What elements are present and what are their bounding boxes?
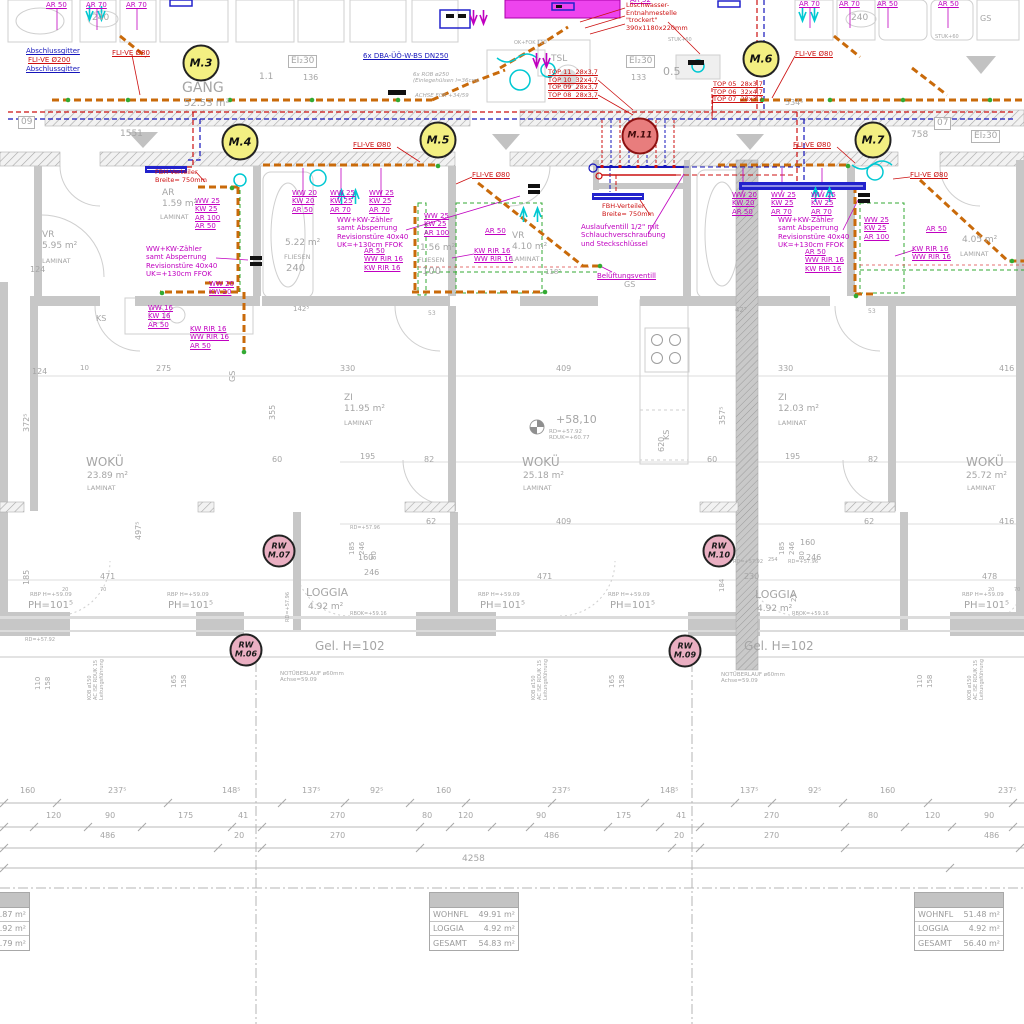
floor-plan: AR 50AR 70AR 70AR 70AR 70AR 50AR 50AR 32… — [0, 0, 1024, 1024]
door-arcs — [42, 166, 1024, 616]
axis-lines — [0, 662, 1024, 1024]
walls — [0, 56, 1024, 670]
vent-lines — [240, 190, 1024, 295]
vent-lines-red — [418, 265, 1024, 267]
water-meter-icons — [170, 0, 870, 266]
section-triangles — [128, 56, 996, 150]
drawing-layer — [0, 0, 1024, 1024]
kitchen-fixtures — [125, 170, 747, 464]
grid-lines — [0, 376, 1024, 868]
elevation-benchmark — [530, 420, 544, 434]
